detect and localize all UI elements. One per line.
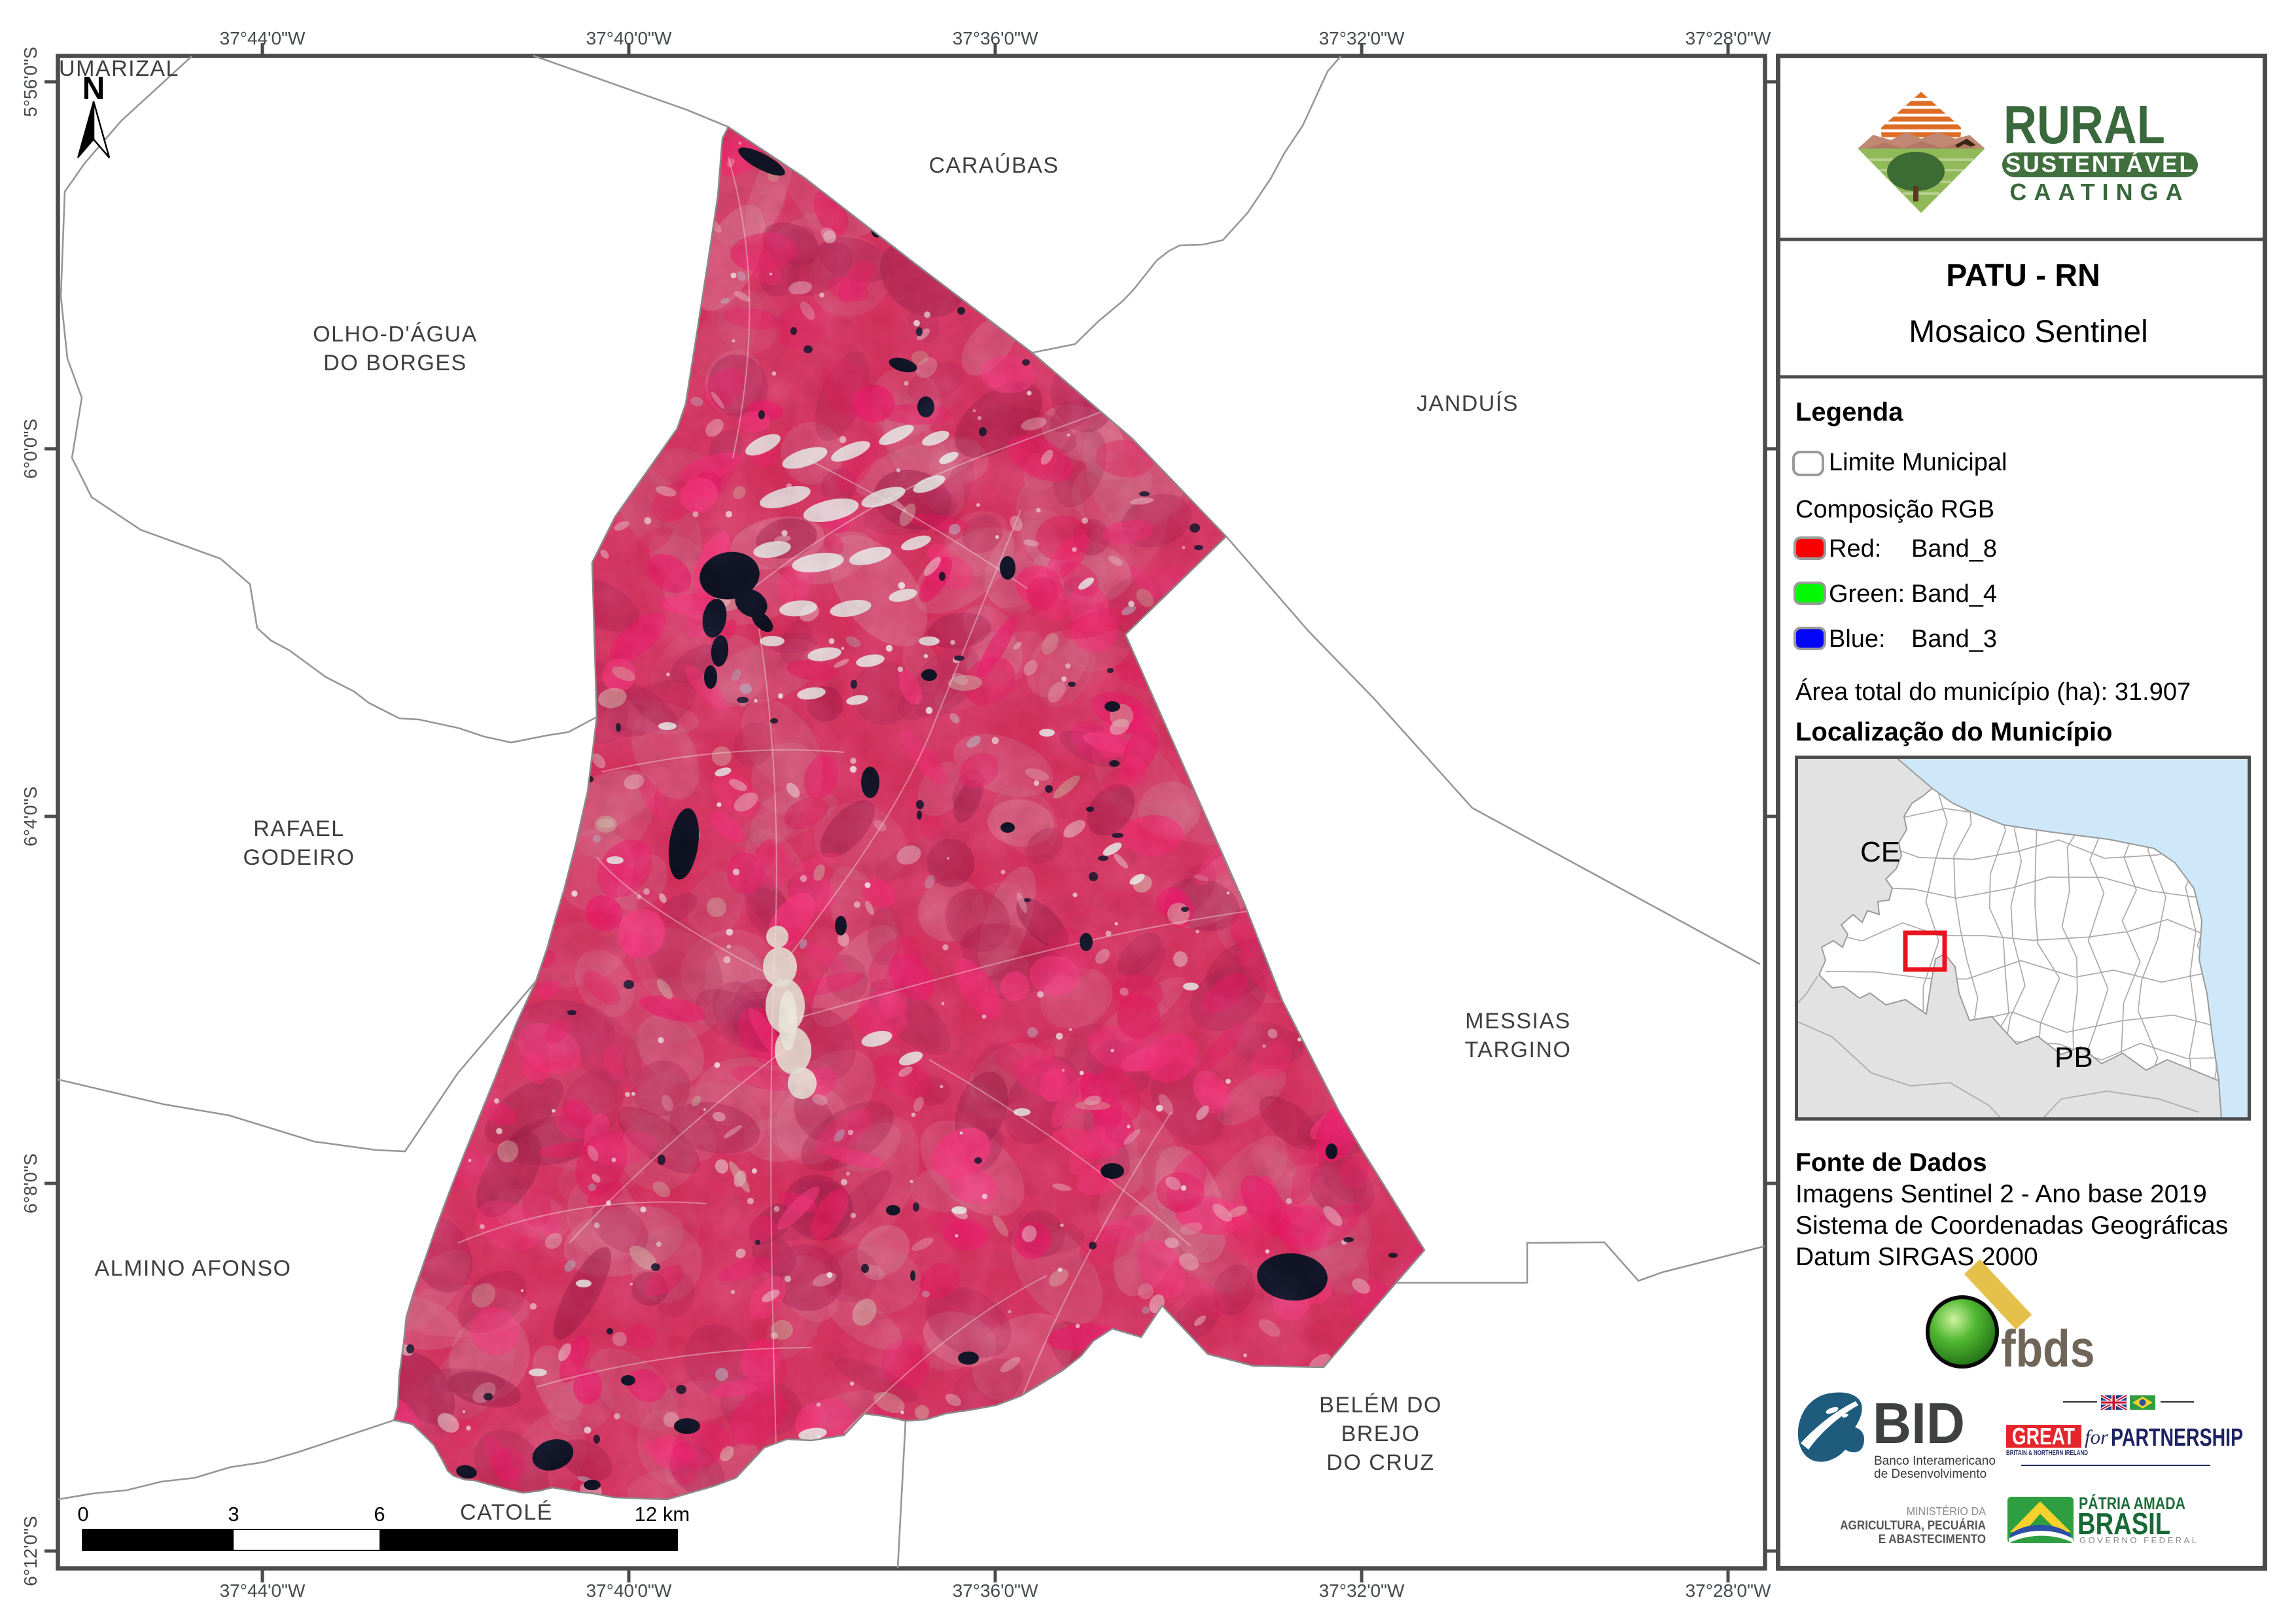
svg-text:BREJO: BREJO (1341, 1422, 1421, 1446)
svg-text:PB: PB (2055, 1041, 2093, 1073)
svg-text:JANDUÍS: JANDUÍS (1417, 391, 1519, 416)
svg-text:SUSTENTÁVEL: SUSTENTÁVEL (2005, 151, 2195, 177)
svg-text:OLHO-D'ÁGUA: OLHO-D'ÁGUA (313, 322, 478, 347)
svg-text:DO BORGES: DO BORGES (323, 351, 467, 375)
svg-text:CAATINGA: CAATINGA (2009, 179, 2189, 205)
svg-text:5°56'0"S: 5°56'0"S (20, 46, 41, 116)
svg-text:PARTNERSHIP: PARTNERSHIP (2111, 1424, 2243, 1452)
svg-text:MINISTÉRIO DA: MINISTÉRIO DA (1907, 1505, 1987, 1518)
svg-text:37°36'0"W: 37°36'0"W (953, 28, 1038, 48)
svg-text:37°32'0"W: 37°32'0"W (1319, 28, 1405, 48)
svg-text:37°44'0"W: 37°44'0"W (220, 28, 306, 48)
svg-text:Band_8: Band_8 (1911, 535, 1997, 563)
svg-text:E ABASTECIMENTO: E ABASTECIMENTO (1879, 1532, 1986, 1546)
svg-text:ALMINO AFONSO: ALMINO AFONSO (95, 1256, 292, 1281)
svg-text:Área total do município (ha):: Área total do município (ha): 31.907 (1795, 678, 2191, 706)
svg-text:for: for (2085, 1425, 2109, 1448)
svg-text:Mosaico Sentinel: Mosaico Sentinel (1909, 315, 2148, 349)
svg-text:TARGINO: TARGINO (1465, 1038, 1572, 1062)
svg-text:PATU - RN: PATU - RN (1946, 258, 2100, 293)
svg-text:Localização do Município: Localização do Município (1795, 718, 2113, 746)
svg-text:DO CRUZ: DO CRUZ (1326, 1450, 1434, 1475)
svg-text:6: 6 (374, 1503, 385, 1526)
svg-text:MESSIAS: MESSIAS (1465, 1009, 1571, 1034)
svg-text:N: N (82, 71, 105, 106)
svg-text:3: 3 (228, 1503, 239, 1526)
svg-text:Banco Interamericano: Banco Interamericano (1874, 1454, 1996, 1468)
svg-text:37°44'0"W: 37°44'0"W (220, 1580, 306, 1601)
svg-text:37°32'0"W: 37°32'0"W (1319, 1580, 1405, 1601)
svg-text:BID: BID (1873, 1391, 1965, 1456)
svg-text:6°0'0"S: 6°0'0"S (20, 419, 41, 479)
svg-text:GODEIRO: GODEIRO (243, 845, 355, 870)
svg-text:Blue:: Blue: (1829, 625, 1886, 653)
svg-text:GREAT: GREAT (2012, 1423, 2075, 1450)
svg-text:CATOLÉ: CATOLÉ (460, 1500, 553, 1525)
svg-text:Imagens Sentinel 2 - Ano base: Imagens Sentinel 2 - Ano base 2019 (1795, 1180, 2207, 1208)
svg-text:37°40'0"W: 37°40'0"W (586, 1580, 672, 1601)
svg-text:Green:: Green: (1829, 580, 1905, 608)
svg-text:0: 0 (77, 1503, 88, 1526)
svg-text:Sistema de Coordenadas Geográf: Sistema de Coordenadas Geográficas (1795, 1212, 2228, 1240)
svg-text:6°8'0"S: 6°8'0"S (20, 1153, 41, 1213)
svg-text:Datum SIRGAS 2000: Datum SIRGAS 2000 (1795, 1243, 2038, 1271)
svg-text:37°40'0"W: 37°40'0"W (586, 28, 672, 48)
svg-text:de Desenvolvimento: de Desenvolvimento (1874, 1467, 1987, 1481)
svg-text:CE: CE (1860, 836, 1900, 868)
svg-text:BELÉM DO: BELÉM DO (1319, 1393, 1442, 1418)
svg-text:Legenda: Legenda (1795, 398, 1903, 427)
svg-text:12 km: 12 km (635, 1503, 690, 1526)
svg-text:Composição RGB: Composição RGB (1795, 496, 1994, 523)
svg-text:Fonte de Dados: Fonte de Dados (1795, 1149, 1987, 1177)
svg-text:Band_4: Band_4 (1911, 580, 1997, 608)
svg-text:GOVERNO FEDERAL: GOVERNO FEDERAL (2079, 1535, 2199, 1545)
svg-text:Band_3: Band_3 (1911, 625, 1997, 653)
svg-text:37°28'0"W: 37°28'0"W (1686, 1580, 1771, 1601)
svg-text:37°36'0"W: 37°36'0"W (953, 1580, 1038, 1601)
svg-text:6°4'0"S: 6°4'0"S (20, 786, 41, 846)
svg-text:AGRICULTURA, PECUÁRIA: AGRICULTURA, PECUÁRIA (1840, 1518, 1986, 1532)
svg-text:6°12'0"S: 6°12'0"S (20, 1516, 41, 1586)
svg-text:Limite Municipal: Limite Municipal (1829, 449, 2007, 476)
svg-text:Red:: Red: (1829, 535, 1881, 563)
svg-text:BRITAIN & NORTHERN IRELAND: BRITAIN & NORTHERN IRELAND (2006, 1449, 2088, 1456)
svg-text:CARAÚBAS: CARAÚBAS (928, 153, 1059, 178)
svg-text:fbds: fbds (2001, 1319, 2095, 1378)
svg-text:RURAL: RURAL (2004, 95, 2165, 156)
svg-text:RAFAEL: RAFAEL (253, 816, 344, 841)
svg-text:UMARIZAL: UMARIZAL (59, 56, 179, 81)
svg-text:37°28'0"W: 37°28'0"W (1686, 28, 1771, 48)
